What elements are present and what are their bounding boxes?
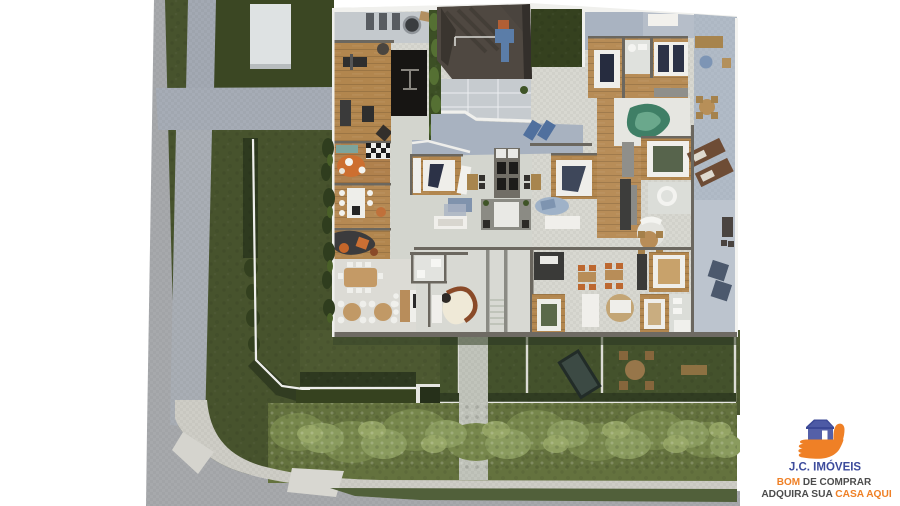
svg-text:BOM DE COMPRAR: BOM DE COMPRAR [777,477,872,488]
svg-text:ADQUIRA SUA CASA AQUI: ADQUIRA SUA CASA AQUI [761,489,892,500]
svg-text:J.C. IMÓVEIS: J.C. IMÓVEIS [789,461,862,474]
